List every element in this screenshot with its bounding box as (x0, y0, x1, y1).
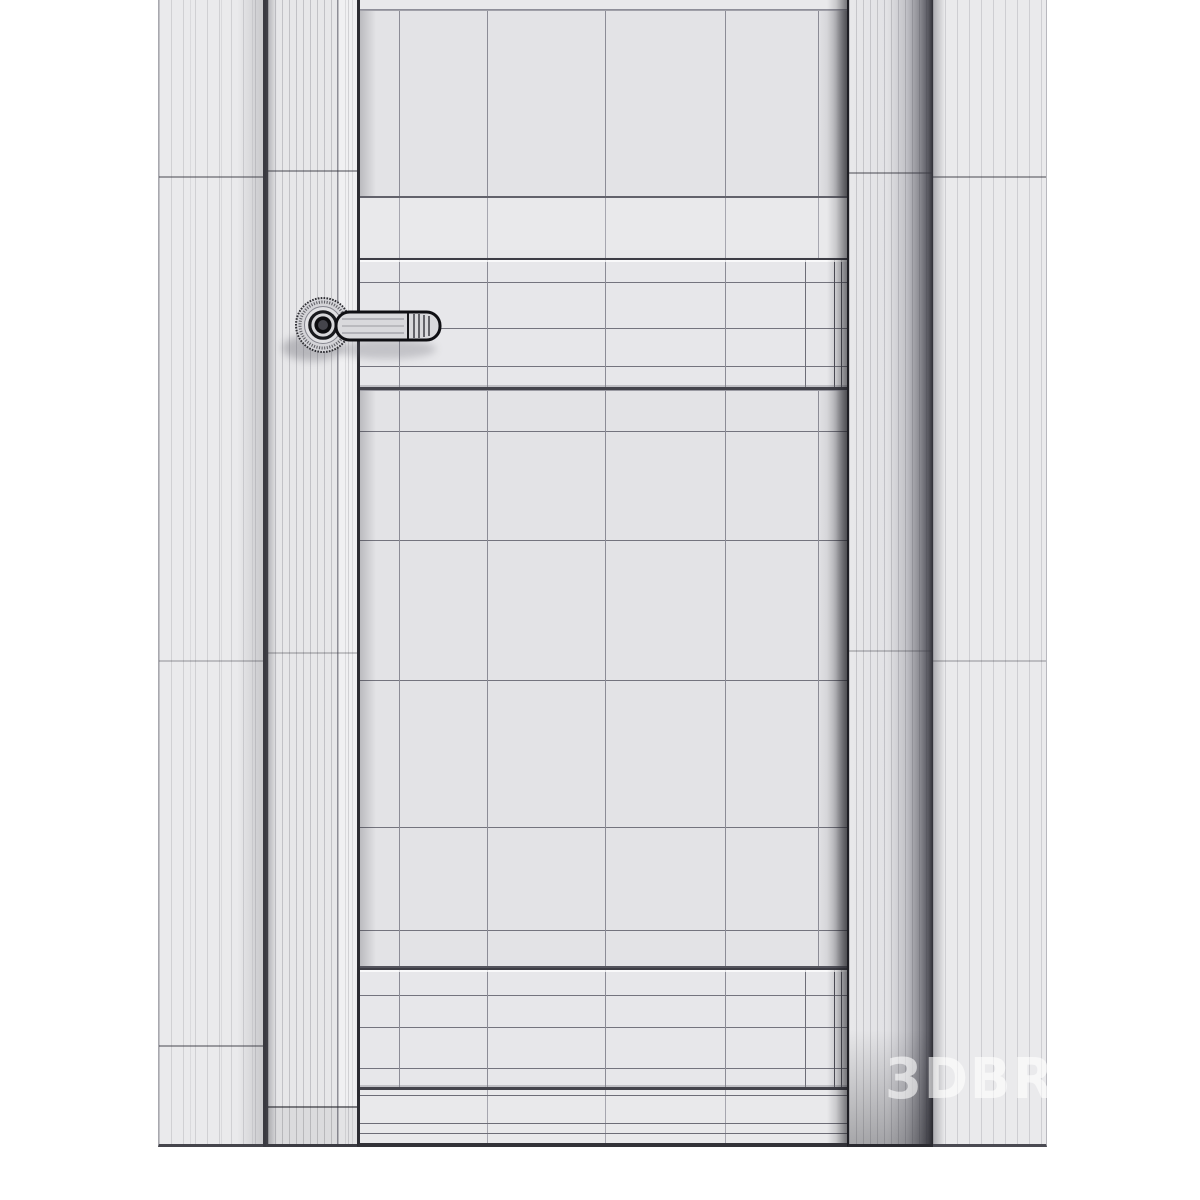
door-top-strip (360, 0, 847, 10)
right-door-casing (847, 0, 933, 1147)
door-handle (274, 282, 458, 378)
panel-seam (849, 172, 933, 174)
door-middle-recessed-panel (360, 390, 847, 968)
door-edge-shadow (827, 0, 847, 1143)
left-wall-panel (158, 0, 263, 1147)
panel-seam (159, 660, 263, 662)
door-bottom-rail-band (360, 968, 847, 1090)
door-top-recessed-panel (360, 10, 847, 198)
panel-seam (933, 176, 1046, 178)
panel-seam (159, 1045, 263, 1047)
left-door-casing (266, 0, 357, 1147)
door-bottom-strip (360, 1090, 847, 1143)
watermark: 3DBRU (885, 1052, 1100, 1108)
right-wall-panel (933, 0, 1047, 1147)
panel-seam (268, 170, 357, 172)
panel-seam (159, 176, 263, 178)
door-leaf (357, 0, 847, 1147)
panel-seam (268, 652, 357, 654)
door-upper-rail (360, 198, 847, 258)
handle-lever (336, 312, 440, 340)
render-canvas: 3DBRU (0, 0, 1200, 1200)
panel-seam (933, 660, 1046, 662)
casing-plinth (268, 1106, 357, 1144)
panel-seam (849, 650, 933, 652)
